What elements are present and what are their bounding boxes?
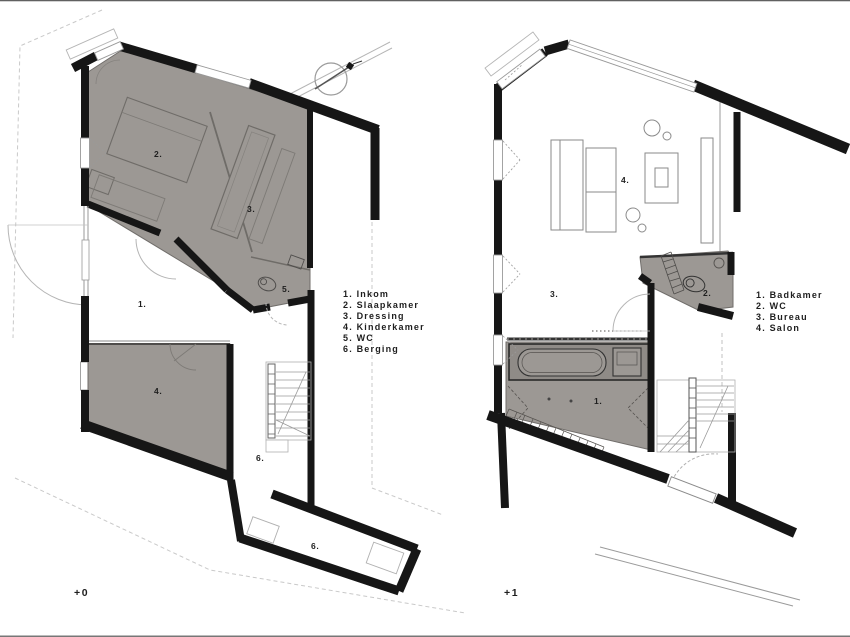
staircase-left-plan	[266, 362, 311, 452]
legend-item: 5. WC	[343, 333, 374, 343]
stair-door	[668, 477, 716, 504]
room-kinderkamer	[88, 341, 230, 479]
room-label-wc-1: 2.	[703, 288, 711, 298]
legend-item: 4. Salon	[756, 323, 800, 333]
drain	[548, 398, 551, 401]
pouf	[626, 208, 640, 222]
legend-item: 3. Bureau	[756, 312, 808, 322]
legend-item: 3. Dressing	[343, 311, 405, 321]
terrace-rect	[485, 32, 539, 76]
roof-eave-lines	[595, 547, 800, 606]
sofa-chaise	[586, 148, 616, 232]
room-label-slaapkamer: 2.	[154, 149, 162, 159]
legend-item: 1. Badkamer	[756, 290, 823, 300]
room-label-dressing: 3.	[247, 204, 255, 214]
room-badkamer	[504, 331, 651, 459]
legend-item: 4. Kinderkamer	[343, 322, 425, 332]
legend-item: 2. Slaapkamer	[343, 300, 419, 310]
legend-left-plan: 1. Inkom 2. Slaapkamer 3. Dressing 4. Ki…	[343, 289, 425, 354]
left-plan-ground-floor: 1. 2. 3. 4. 5. 6. 6. 1. Inkom 2. Slaapka…	[8, 10, 465, 613]
understair-storage	[266, 440, 288, 452]
room-label-bureau: 3.	[550, 289, 558, 299]
room-label-salon: 4.	[621, 175, 629, 185]
sofa	[551, 140, 583, 230]
salon-furniture	[551, 96, 720, 252]
room-label-inkom: 1.	[138, 299, 146, 309]
windows-right-plan	[485, 32, 697, 365]
floor-plan-sheet: 1. 2. 3. 4. 5. 6. 6. 1. Inkom 2. Slaapka…	[0, 0, 850, 637]
right-plan-first-floor: 1. 2. 3. 4. 1. Badkamer 2. WC 3. Bureau …	[485, 32, 848, 606]
room-label-berging-1: 6.	[256, 453, 264, 463]
legend-right-plan: 1. Badkamer 2. WC 3. Bureau 4. Salon	[756, 290, 823, 333]
floor-label-first: +1	[504, 587, 519, 599]
plant	[644, 120, 660, 136]
room-label-berging-2: 6.	[311, 541, 319, 551]
floor-label-ground: +0	[74, 587, 89, 599]
room-label-kinderkamer: 4.	[154, 386, 162, 396]
legend-item: 1. Inkom	[343, 289, 389, 299]
shelf	[701, 138, 713, 243]
room-label-badkamer: 1.	[594, 396, 602, 406]
north-arrow-icon	[315, 61, 362, 95]
drain	[570, 400, 573, 403]
room-label-wc: 5.	[282, 284, 290, 294]
legend-item: 6. Berging	[343, 344, 399, 354]
bathtub	[518, 349, 606, 376]
staircase-right-plan	[657, 378, 735, 452]
coffee-table	[645, 153, 678, 203]
legend-item: 2. WC	[756, 301, 787, 311]
